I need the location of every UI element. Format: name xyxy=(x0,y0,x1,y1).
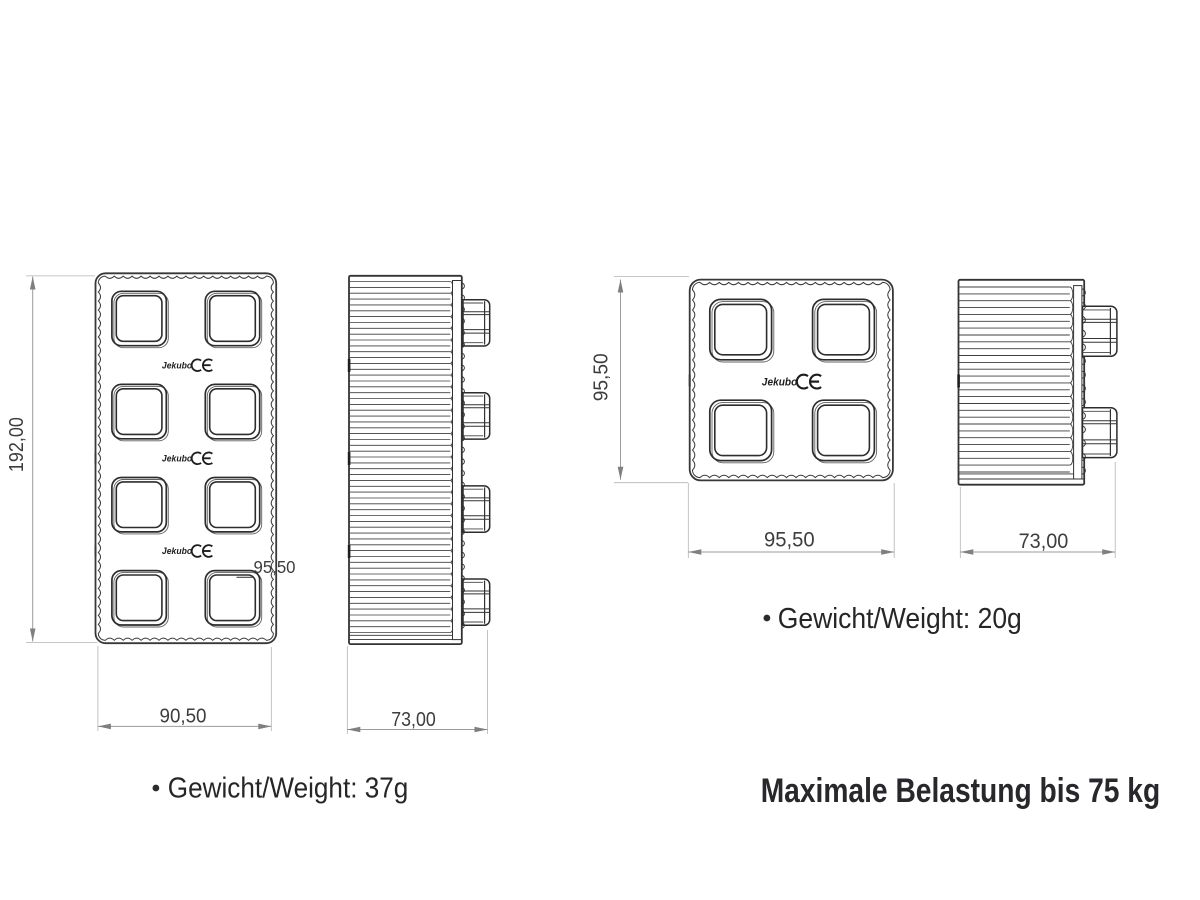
svg-text:Gewicht/Weight: 20g: Gewicht/Weight: 20g xyxy=(778,603,1022,635)
svg-text:73,00: 73,00 xyxy=(1019,530,1069,553)
svg-text:Jekubo: Jekubo xyxy=(162,360,192,370)
svg-text:192,00: 192,00 xyxy=(6,417,28,472)
svg-text:95,50: 95,50 xyxy=(764,529,815,552)
svg-text:90,50: 90,50 xyxy=(160,706,207,728)
svg-text:Jekubo: Jekubo xyxy=(762,376,798,388)
svg-text:95,50: 95,50 xyxy=(254,557,296,577)
svg-text:Gewicht/Weight: 37g: Gewicht/Weight: 37g xyxy=(168,773,408,805)
svg-text:Maximale Belastung bis 75 kg: Maximale Belastung bis 75 kg xyxy=(761,772,1160,810)
svg-text:Jekubo: Jekubo xyxy=(162,546,192,556)
svg-text:73,00: 73,00 xyxy=(391,709,436,731)
svg-text:Jekubo: Jekubo xyxy=(162,454,192,464)
svg-text:95,50: 95,50 xyxy=(591,353,613,401)
